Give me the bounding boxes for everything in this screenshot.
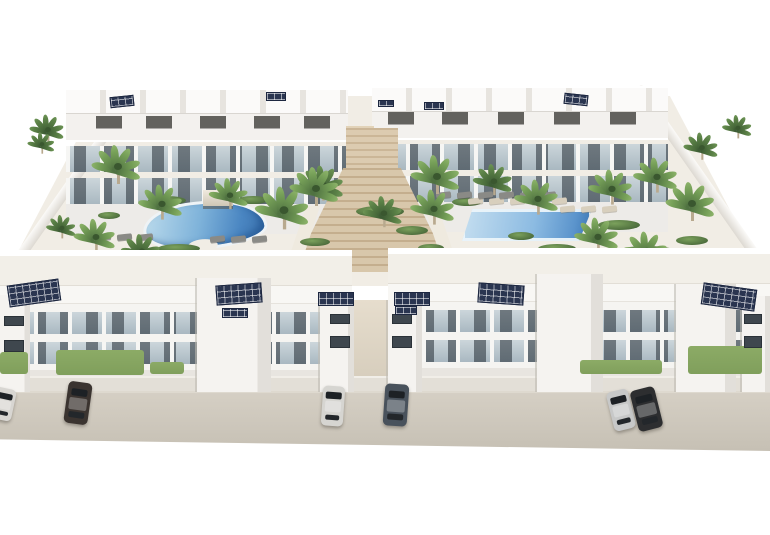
solar-panel-array <box>477 282 524 305</box>
palm-crown <box>736 126 741 130</box>
car-glass <box>326 392 342 400</box>
palm-crown <box>40 142 44 146</box>
grass-patch <box>580 360 662 374</box>
window <box>330 336 350 348</box>
palm-crown <box>491 178 497 184</box>
shrub <box>396 226 428 235</box>
shrub <box>300 238 330 246</box>
palm-crown <box>280 206 289 214</box>
solar-panel-array <box>394 292 430 306</box>
car-roof <box>68 397 88 411</box>
architectural-render <box>0 0 770 535</box>
palm-crown <box>534 196 541 202</box>
balcony-band <box>372 144 668 170</box>
shrub <box>508 232 534 240</box>
palm-crown <box>688 200 696 207</box>
car-glass <box>616 417 631 425</box>
solar-panel-array <box>318 292 354 306</box>
car-glass <box>387 414 403 421</box>
terrace-furniture <box>254 116 280 128</box>
penthouse-row <box>66 88 348 114</box>
grass-patch <box>688 346 762 374</box>
balcony-band <box>0 312 352 334</box>
terrace-furniture <box>442 112 468 124</box>
solar-panel-array <box>215 282 262 305</box>
parked-car <box>321 385 346 426</box>
terrace-furniture <box>388 112 414 124</box>
car-glass <box>388 390 405 398</box>
car-roof <box>0 398 12 410</box>
palm-crown <box>430 206 437 212</box>
balcony-band <box>0 342 352 364</box>
parked-car <box>383 383 410 427</box>
palm-crown <box>60 226 65 230</box>
palm-crown <box>699 145 705 150</box>
solar-panel-array <box>395 306 417 315</box>
palm-crown <box>608 186 615 192</box>
grass-patch <box>150 362 184 374</box>
car-roof <box>612 403 631 418</box>
car-glass <box>641 416 658 425</box>
palm-crown <box>381 210 387 216</box>
palm-crown <box>114 163 122 170</box>
palm-crown <box>227 192 233 198</box>
penthouse-row <box>372 86 668 112</box>
palm-crown <box>433 173 441 180</box>
palm-crown <box>653 174 660 180</box>
palm-crown <box>45 127 51 132</box>
solar-panel-array <box>424 102 444 110</box>
palm-crown <box>312 185 320 192</box>
solar-panel-array <box>378 100 394 107</box>
terrace-furniture <box>304 116 330 128</box>
stair-tower <box>537 274 603 392</box>
terrace-furniture <box>554 112 580 124</box>
terrace-furniture <box>498 112 524 124</box>
solar-panel-array <box>563 93 588 106</box>
terrace-furniture <box>200 116 226 128</box>
palm-crown <box>594 234 601 240</box>
terrace-furniture <box>610 112 636 124</box>
car-roof <box>324 401 341 413</box>
car-glass <box>68 411 84 419</box>
terrace-furniture <box>146 116 172 128</box>
window <box>330 314 350 324</box>
car-glass <box>0 409 8 416</box>
car-glass <box>71 388 89 397</box>
shrub <box>98 212 120 219</box>
window <box>392 314 412 324</box>
solar-panel-array <box>222 308 248 318</box>
window <box>744 314 762 324</box>
car-roof <box>386 399 405 412</box>
window <box>4 340 24 352</box>
grass-patch <box>56 350 144 375</box>
car-glass <box>325 414 339 420</box>
terrace-furniture <box>96 116 122 128</box>
window <box>392 336 412 348</box>
palm-crown <box>158 201 165 207</box>
solar-panel-array <box>266 92 286 101</box>
window <box>4 316 24 326</box>
grass-patch <box>0 352 28 374</box>
window <box>744 336 762 348</box>
palm-crown <box>93 234 100 240</box>
shrub <box>676 236 708 245</box>
